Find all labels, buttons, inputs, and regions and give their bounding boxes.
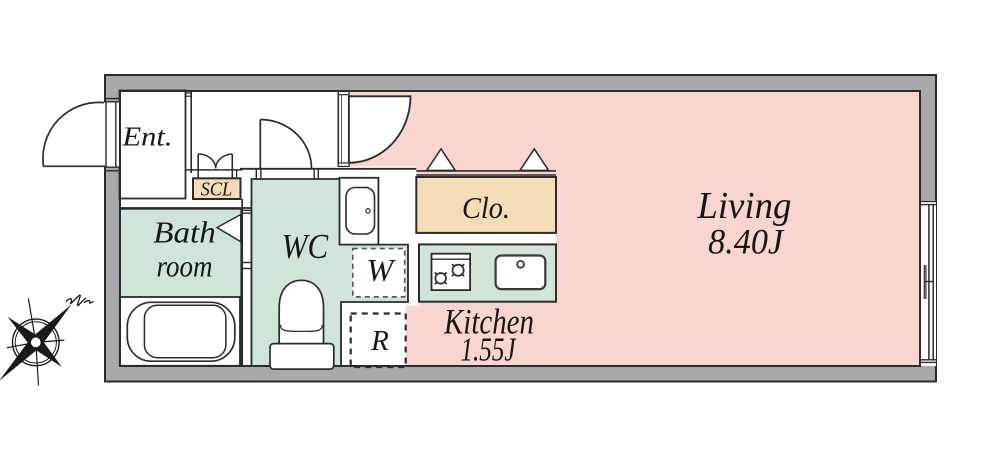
svg-text:SCL: SCL <box>201 179 233 201</box>
svg-text:Clo.: Clo. <box>462 191 510 225</box>
svg-text:R: R <box>370 325 389 357</box>
svg-text:8.40J: 8.40J <box>708 222 785 262</box>
svg-text:Bath: Bath <box>153 216 216 250</box>
svg-text:WC: WC <box>282 227 329 266</box>
svg-text:1.55J: 1.55J <box>461 331 517 368</box>
svg-text:W: W <box>367 252 397 288</box>
svg-text:room: room <box>157 250 213 284</box>
svg-text:Ent.: Ent. <box>121 122 172 152</box>
